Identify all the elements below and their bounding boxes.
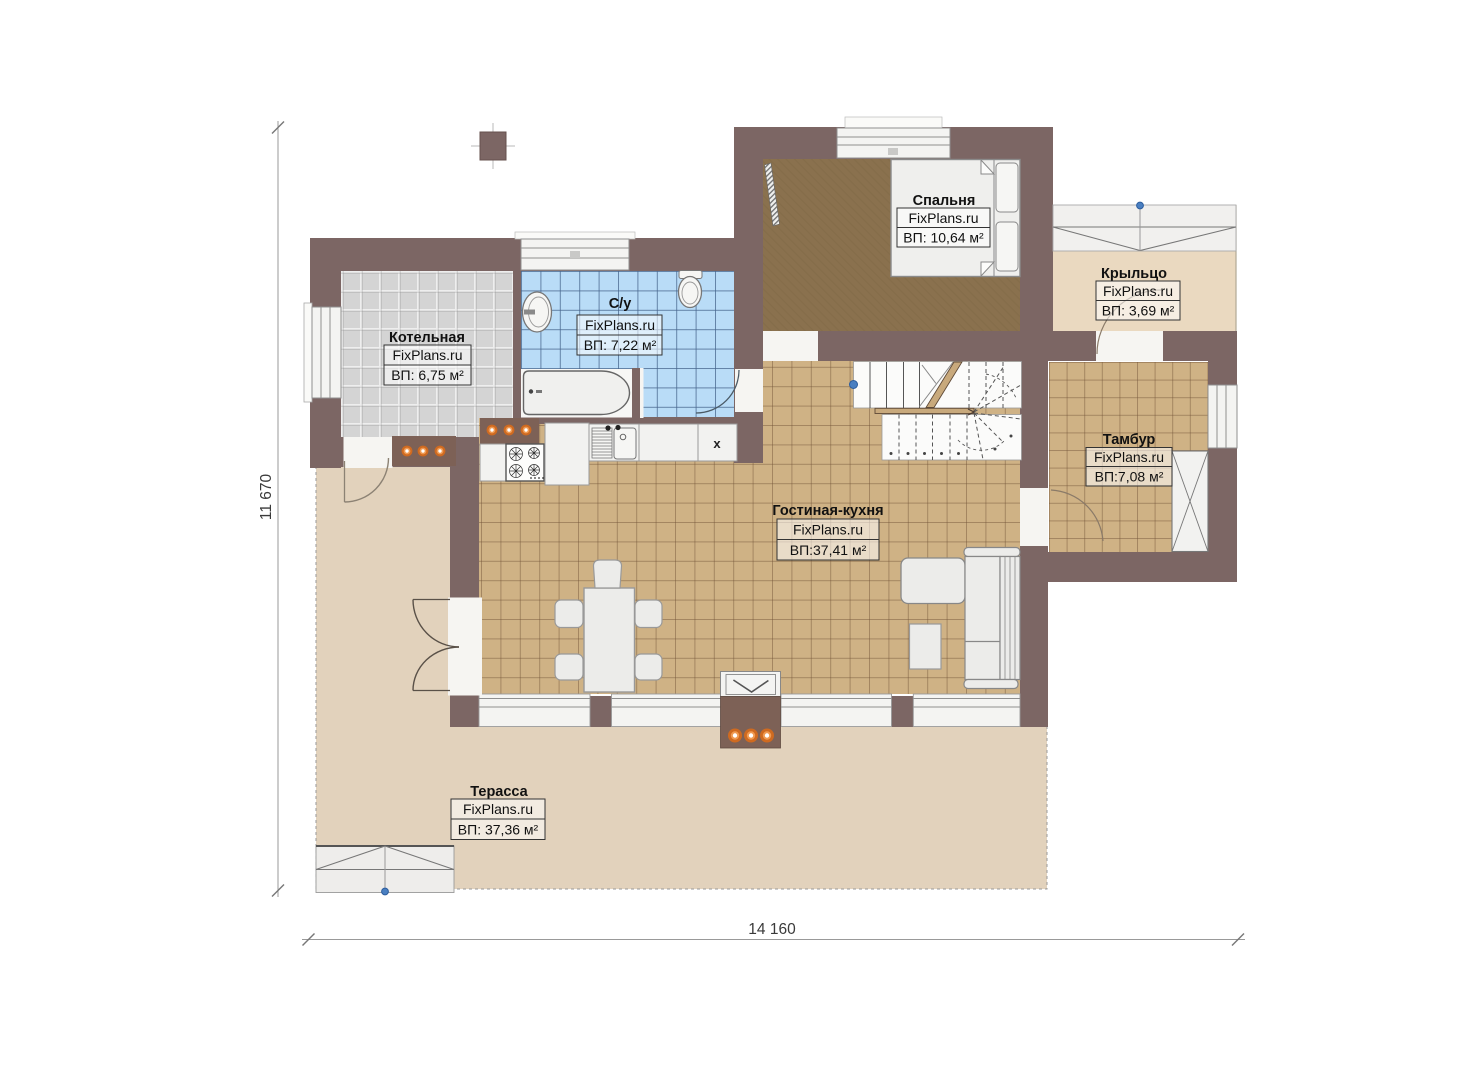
svg-text:ВП:7,08 м²: ВП:7,08 м²	[1095, 469, 1164, 485]
svg-text:ВП: 3,69 м²: ВП: 3,69 м²	[1102, 303, 1175, 319]
svg-text:Спальня: Спальня	[913, 193, 976, 209]
svg-text:FixPlans.ru: FixPlans.ru	[908, 210, 978, 226]
svg-text:Тамбур: Тамбур	[1103, 432, 1156, 448]
svg-text:Котельная: Котельная	[389, 330, 465, 346]
svg-text:14 160: 14 160	[748, 921, 796, 938]
svg-text:ВП: 7,22 м²: ВП: 7,22 м²	[584, 337, 657, 353]
svg-text:FixPlans.ru: FixPlans.ru	[1094, 449, 1164, 465]
svg-text:Терасса: Терасса	[470, 784, 528, 800]
svg-text:Крыльцо: Крыльцо	[1101, 266, 1167, 282]
svg-text:ВП: 37,36 м²: ВП: 37,36 м²	[458, 822, 539, 838]
svg-text:С/у: С/у	[609, 296, 632, 312]
svg-text:x: x	[713, 436, 721, 451]
svg-text:Гостиная-кухня: Гостиная-кухня	[772, 503, 883, 519]
svg-text:FixPlans.ru: FixPlans.ru	[392, 347, 462, 363]
svg-text:ВП: 10,64 м²: ВП: 10,64 м²	[903, 230, 984, 246]
svg-text:FixPlans.ru: FixPlans.ru	[1103, 283, 1173, 299]
svg-text:11 670: 11 670	[258, 473, 275, 520]
svg-text:FixPlans.ru: FixPlans.ru	[463, 801, 533, 817]
svg-text:ВП: 6,75 м²: ВП: 6,75 м²	[391, 367, 464, 383]
svg-text:FixPlans.ru: FixPlans.ru	[585, 317, 655, 333]
svg-text:ВП:37,41 м²: ВП:37,41 м²	[790, 542, 867, 558]
svg-text:FixPlans.ru: FixPlans.ru	[793, 522, 863, 538]
